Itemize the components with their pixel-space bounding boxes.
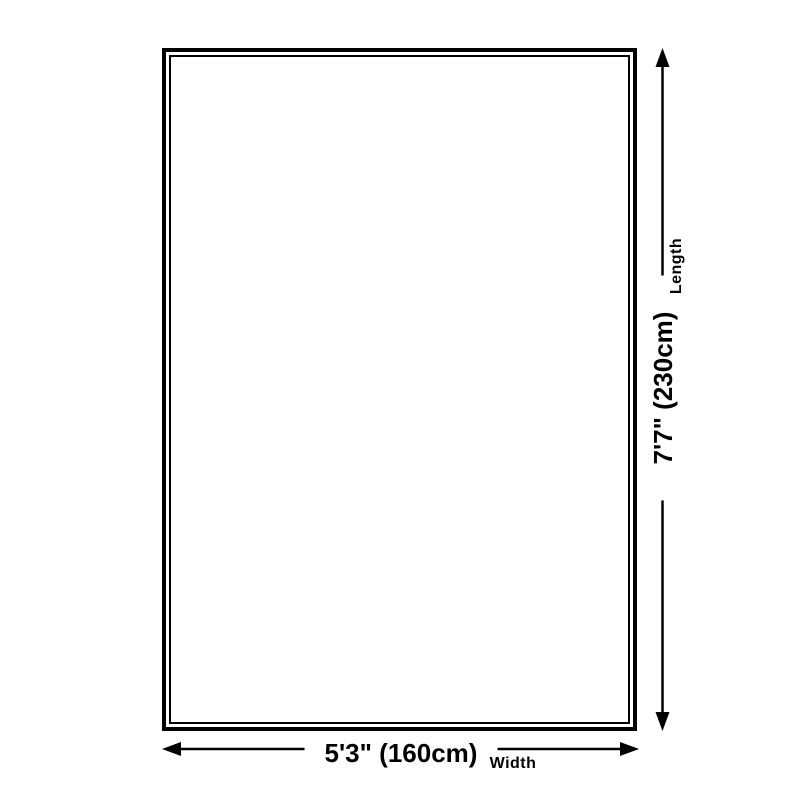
arrow-left-icon (162, 742, 181, 756)
rug-rectangle-outer-border (162, 48, 637, 731)
length-value: 7'7" (230cm) (648, 276, 678, 501)
arrow-right-icon (620, 742, 639, 756)
dimension-diagram: 7'7" (230cm) Length 5'3" (160cm) Width (0, 0, 800, 800)
width-label: Width (490, 756, 537, 772)
length-label: Length (669, 238, 685, 294)
arrow-up-icon (656, 48, 670, 67)
width-value: 5'3" (160cm) (305, 738, 498, 768)
arrow-down-icon (656, 712, 670, 731)
rug-rectangle-inner-border (169, 55, 630, 724)
